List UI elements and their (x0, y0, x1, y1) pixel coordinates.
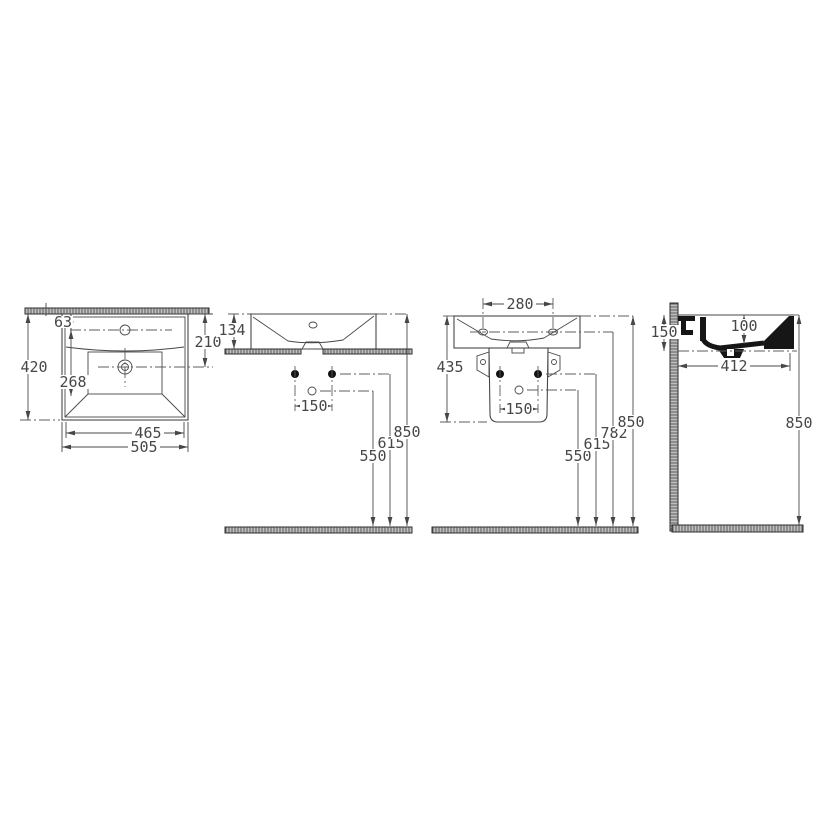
dim-total-width: 505 (130, 438, 157, 456)
bowl-inner-profile (457, 318, 577, 341)
floor-hatch-bar (225, 527, 412, 533)
floor-hatch-bar (432, 527, 638, 533)
bowl-chamfer-right (162, 394, 185, 417)
side-section-view: 150 100 412 850 (648, 303, 815, 532)
technical-drawing: 420 63 268 210 465 505 (0, 0, 830, 830)
drain-funnel (507, 342, 529, 348)
dim-bolt-spacing: 150 (300, 397, 327, 415)
shelf-hatch-left (225, 349, 301, 354)
tab-hole-right (552, 360, 557, 365)
dim-front-height: 134 (218, 321, 245, 339)
wall-hatch-bar (25, 308, 209, 314)
overflow-hole (309, 322, 317, 328)
bowl-inner-profile (253, 316, 374, 343)
shelf-hatch-right (323, 349, 412, 354)
bowl-bottom-section (703, 339, 764, 348)
dim-rim-height: 850 (785, 414, 812, 432)
dim-rim-to-tap: 63 (54, 313, 72, 331)
front-view: 150 134 550 615 850 (216, 314, 423, 533)
tab-hole-left (481, 360, 486, 365)
drain-outlet (308, 387, 316, 395)
dim-basin-pedestal-height: 435 (436, 358, 463, 376)
drain-slot (727, 349, 734, 356)
dim-rim-depth: 150 (650, 323, 677, 341)
dim-bolt-spacing: 150 (505, 400, 532, 418)
drain-pipe-stub (512, 348, 524, 353)
bowl-back-section (700, 317, 706, 341)
wall-bracket-section (678, 316, 695, 335)
dim-rim-height: 850 (617, 413, 644, 431)
drain-outlet (515, 386, 523, 394)
dim-tap-to-drain: 268 (59, 373, 86, 391)
dim-rim-height: 850 (393, 423, 420, 441)
dim-tap-spacing: 280 (506, 295, 533, 313)
dim-projection: 412 (720, 357, 747, 375)
front-view-pedestal: 280 150 435 550 615 (432, 295, 647, 533)
dim-total-depth: 420 (20, 358, 47, 376)
front-apron-section (764, 316, 794, 349)
floor-hatch-bar (672, 525, 803, 532)
drawing-canvas: 420 63 268 210 465 505 (0, 0, 830, 830)
top-view: 420 63 268 210 465 505 (18, 303, 224, 456)
bowl-chamfer-left (65, 394, 88, 417)
dim-bowl-depth: 100 (730, 317, 757, 335)
